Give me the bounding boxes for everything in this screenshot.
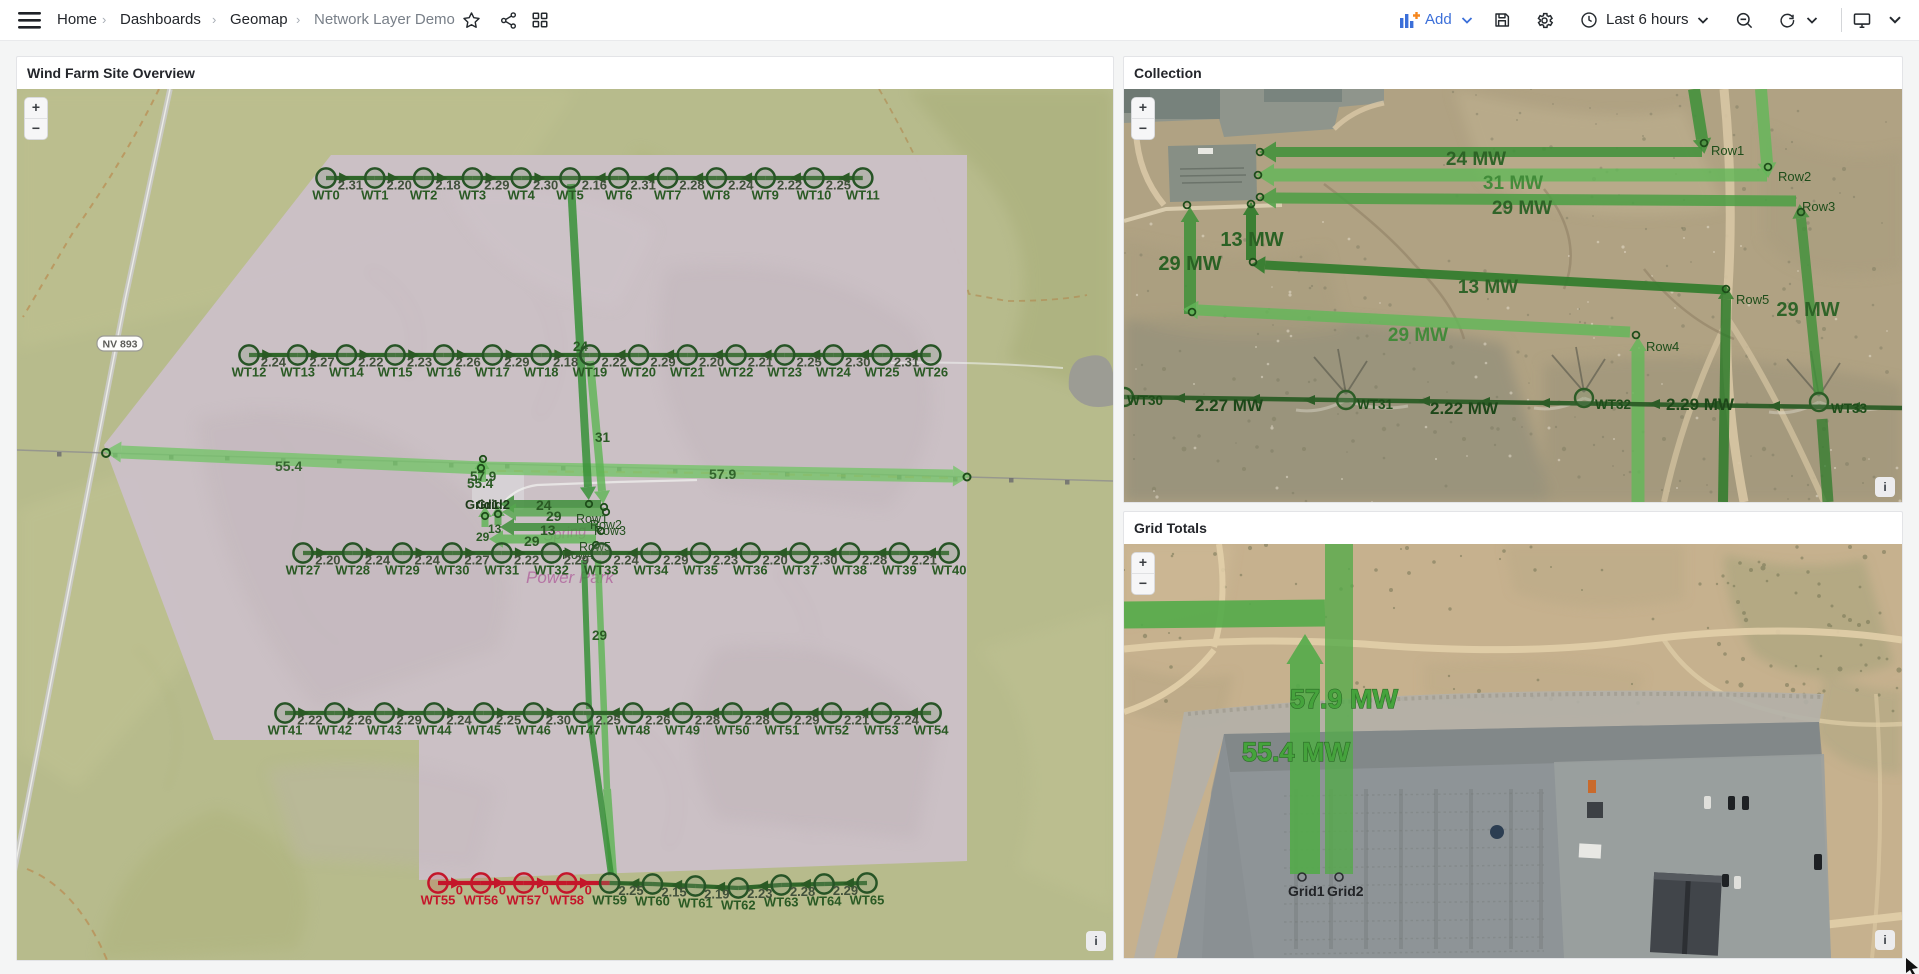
svg-text:57.9: 57.9 [709, 466, 736, 482]
svg-text:13 MW: 13 MW [1220, 229, 1283, 251]
svg-text:0: 0 [456, 883, 463, 898]
svg-text:WT64: WT64 [807, 894, 842, 909]
svg-text:WT54: WT54 [914, 723, 949, 738]
svg-text:WT38: WT38 [832, 563, 867, 578]
svg-text:24 MW: 24 MW [1446, 149, 1506, 170]
svg-text:WT12: WT12 [232, 365, 267, 380]
svg-text:WT63: WT63 [764, 895, 799, 910]
svg-text:55.4: 55.4 [467, 476, 494, 491]
svg-text:0: 0 [585, 883, 592, 898]
svg-text:WT19: WT19 [573, 365, 608, 380]
svg-text:WT22: WT22 [719, 365, 754, 380]
svg-text:13: 13 [540, 522, 556, 538]
svg-text:Row3: Row3 [594, 524, 626, 538]
svg-text:WT3: WT3 [459, 188, 486, 203]
svg-text:Row4: Row4 [1646, 339, 1679, 354]
svg-text:WT43: WT43 [367, 723, 402, 738]
svg-text:31: 31 [595, 430, 611, 445]
svg-text:WT25: WT25 [865, 365, 900, 380]
svg-text:2.31: 2.31 [631, 178, 656, 193]
svg-text:WT51: WT51 [765, 723, 800, 738]
svg-text:WT56: WT56 [464, 893, 499, 908]
svg-text:WT30: WT30 [1127, 393, 1163, 408]
svg-text:WT5: WT5 [556, 188, 583, 203]
svg-text:WT9: WT9 [751, 188, 778, 203]
svg-text:57.9 MW: 57.9 MW [1290, 684, 1399, 714]
svg-text:13 MW: 13 MW [1458, 277, 1518, 298]
svg-text:WT34: WT34 [634, 563, 669, 578]
svg-text:WT57: WT57 [506, 893, 541, 908]
svg-text:WT58: WT58 [549, 893, 584, 908]
svg-text:WT29: WT29 [385, 563, 420, 578]
svg-text:2.30: 2.30 [533, 178, 558, 193]
svg-text:NV 893: NV 893 [102, 339, 137, 351]
svg-text:WT11: WT11 [846, 188, 880, 203]
svg-text:WT21: WT21 [670, 365, 705, 380]
svg-text:WT33: WT33 [1831, 401, 1867, 416]
svg-text:Grid2: Grid2 [476, 497, 510, 512]
svg-text:WT15: WT15 [378, 365, 413, 380]
svg-text:29: 29 [524, 533, 540, 549]
svg-text:WT48: WT48 [616, 723, 651, 738]
svg-text:29: 29 [476, 530, 490, 544]
svg-text:2.29 MW: 2.29 MW [1666, 395, 1735, 414]
svg-text:29: 29 [592, 628, 607, 643]
svg-text:Row1: Row1 [1711, 143, 1744, 158]
svg-text:WT23: WT23 [767, 365, 802, 380]
svg-text:WT35: WT35 [683, 563, 718, 578]
svg-text:WT7: WT7 [654, 188, 681, 203]
svg-text:WT4: WT4 [507, 188, 535, 203]
svg-text:WT13: WT13 [280, 365, 315, 380]
svg-text:2.31: 2.31 [338, 178, 363, 193]
svg-text:WT40: WT40 [932, 563, 967, 578]
svg-text:29 MW: 29 MW [1158, 253, 1221, 275]
svg-text:WT42: WT42 [317, 723, 352, 738]
svg-text:WT17: WT17 [475, 365, 510, 380]
svg-text:WT53: WT53 [864, 723, 899, 738]
svg-text:2.22 MW: 2.22 MW [1430, 399, 1499, 418]
svg-text:29 MW: 29 MW [1776, 299, 1839, 321]
svg-text:WT41: WT41 [268, 723, 303, 738]
svg-text:WT36: WT36 [733, 563, 768, 578]
svg-text:WT28: WT28 [335, 563, 370, 578]
svg-text:WT37: WT37 [783, 563, 818, 578]
svg-text:WT65: WT65 [850, 893, 885, 908]
svg-text:WT59: WT59 [592, 893, 627, 908]
svg-text:55.4: 55.4 [275, 458, 302, 474]
svg-text:WT60: WT60 [635, 894, 670, 909]
svg-text:WT8: WT8 [703, 188, 730, 203]
svg-text:WT61: WT61 [678, 896, 713, 911]
svg-text:WT33: WT33 [584, 563, 619, 578]
svg-text:WT32: WT32 [1595, 397, 1631, 412]
svg-text:Row3: Row3 [1802, 199, 1835, 214]
svg-text:0: 0 [499, 883, 506, 898]
svg-text:WT10: WT10 [797, 188, 832, 203]
svg-text:WT30: WT30 [435, 563, 470, 578]
svg-text:WT0: WT0 [312, 188, 339, 203]
svg-text:Row5: Row5 [1736, 292, 1769, 307]
svg-text:2.29: 2.29 [484, 178, 509, 193]
svg-text:WT62: WT62 [721, 898, 756, 913]
svg-text:0: 0 [542, 883, 549, 898]
svg-text:WT18: WT18 [524, 365, 559, 380]
svg-text:WT1: WT1 [361, 188, 388, 203]
svg-text:WT2: WT2 [410, 188, 437, 203]
svg-text:WT16: WT16 [426, 365, 461, 380]
svg-text:2.20: 2.20 [387, 178, 412, 193]
svg-text:2.27 MW: 2.27 MW [1195, 396, 1264, 415]
svg-text:WT24: WT24 [816, 365, 851, 380]
svg-text:WT31: WT31 [1357, 397, 1393, 412]
svg-text:2.18: 2.18 [435, 178, 460, 193]
svg-text:WT55: WT55 [421, 893, 456, 908]
svg-text:WT14: WT14 [329, 365, 364, 380]
svg-text:WT47: WT47 [566, 723, 601, 738]
svg-text:WT6: WT6 [605, 188, 632, 203]
svg-text:29 MW: 29 MW [1492, 198, 1552, 219]
svg-text:2.24: 2.24 [728, 178, 754, 193]
svg-text:2.28: 2.28 [679, 178, 704, 193]
svg-text:Grid2: Grid2 [1327, 883, 1364, 899]
svg-text:Row2: Row2 [1778, 169, 1811, 184]
svg-text:29 MW: 29 MW [1388, 325, 1448, 346]
svg-text:WT32: WT32 [534, 563, 569, 578]
svg-text:WT45: WT45 [466, 723, 501, 738]
svg-text:WT31: WT31 [484, 563, 519, 578]
svg-text:WT26: WT26 [913, 365, 948, 380]
svg-text:WT46: WT46 [516, 723, 551, 738]
svg-text:WT44: WT44 [417, 723, 452, 738]
svg-text:Grid1: Grid1 [1288, 883, 1325, 899]
svg-text:WT50: WT50 [715, 723, 750, 738]
svg-text:WT49: WT49 [665, 723, 700, 738]
svg-text:31 MW: 31 MW [1483, 173, 1543, 194]
svg-text:13: 13 [488, 522, 502, 536]
svg-text:2.16: 2.16 [582, 178, 607, 193]
svg-text:WT20: WT20 [621, 365, 656, 380]
svg-text:WT39: WT39 [882, 563, 917, 578]
svg-text:WT27: WT27 [286, 563, 321, 578]
svg-text:WT52: WT52 [814, 723, 849, 738]
svg-text:55.4 MW: 55.4 MW [1242, 737, 1351, 767]
